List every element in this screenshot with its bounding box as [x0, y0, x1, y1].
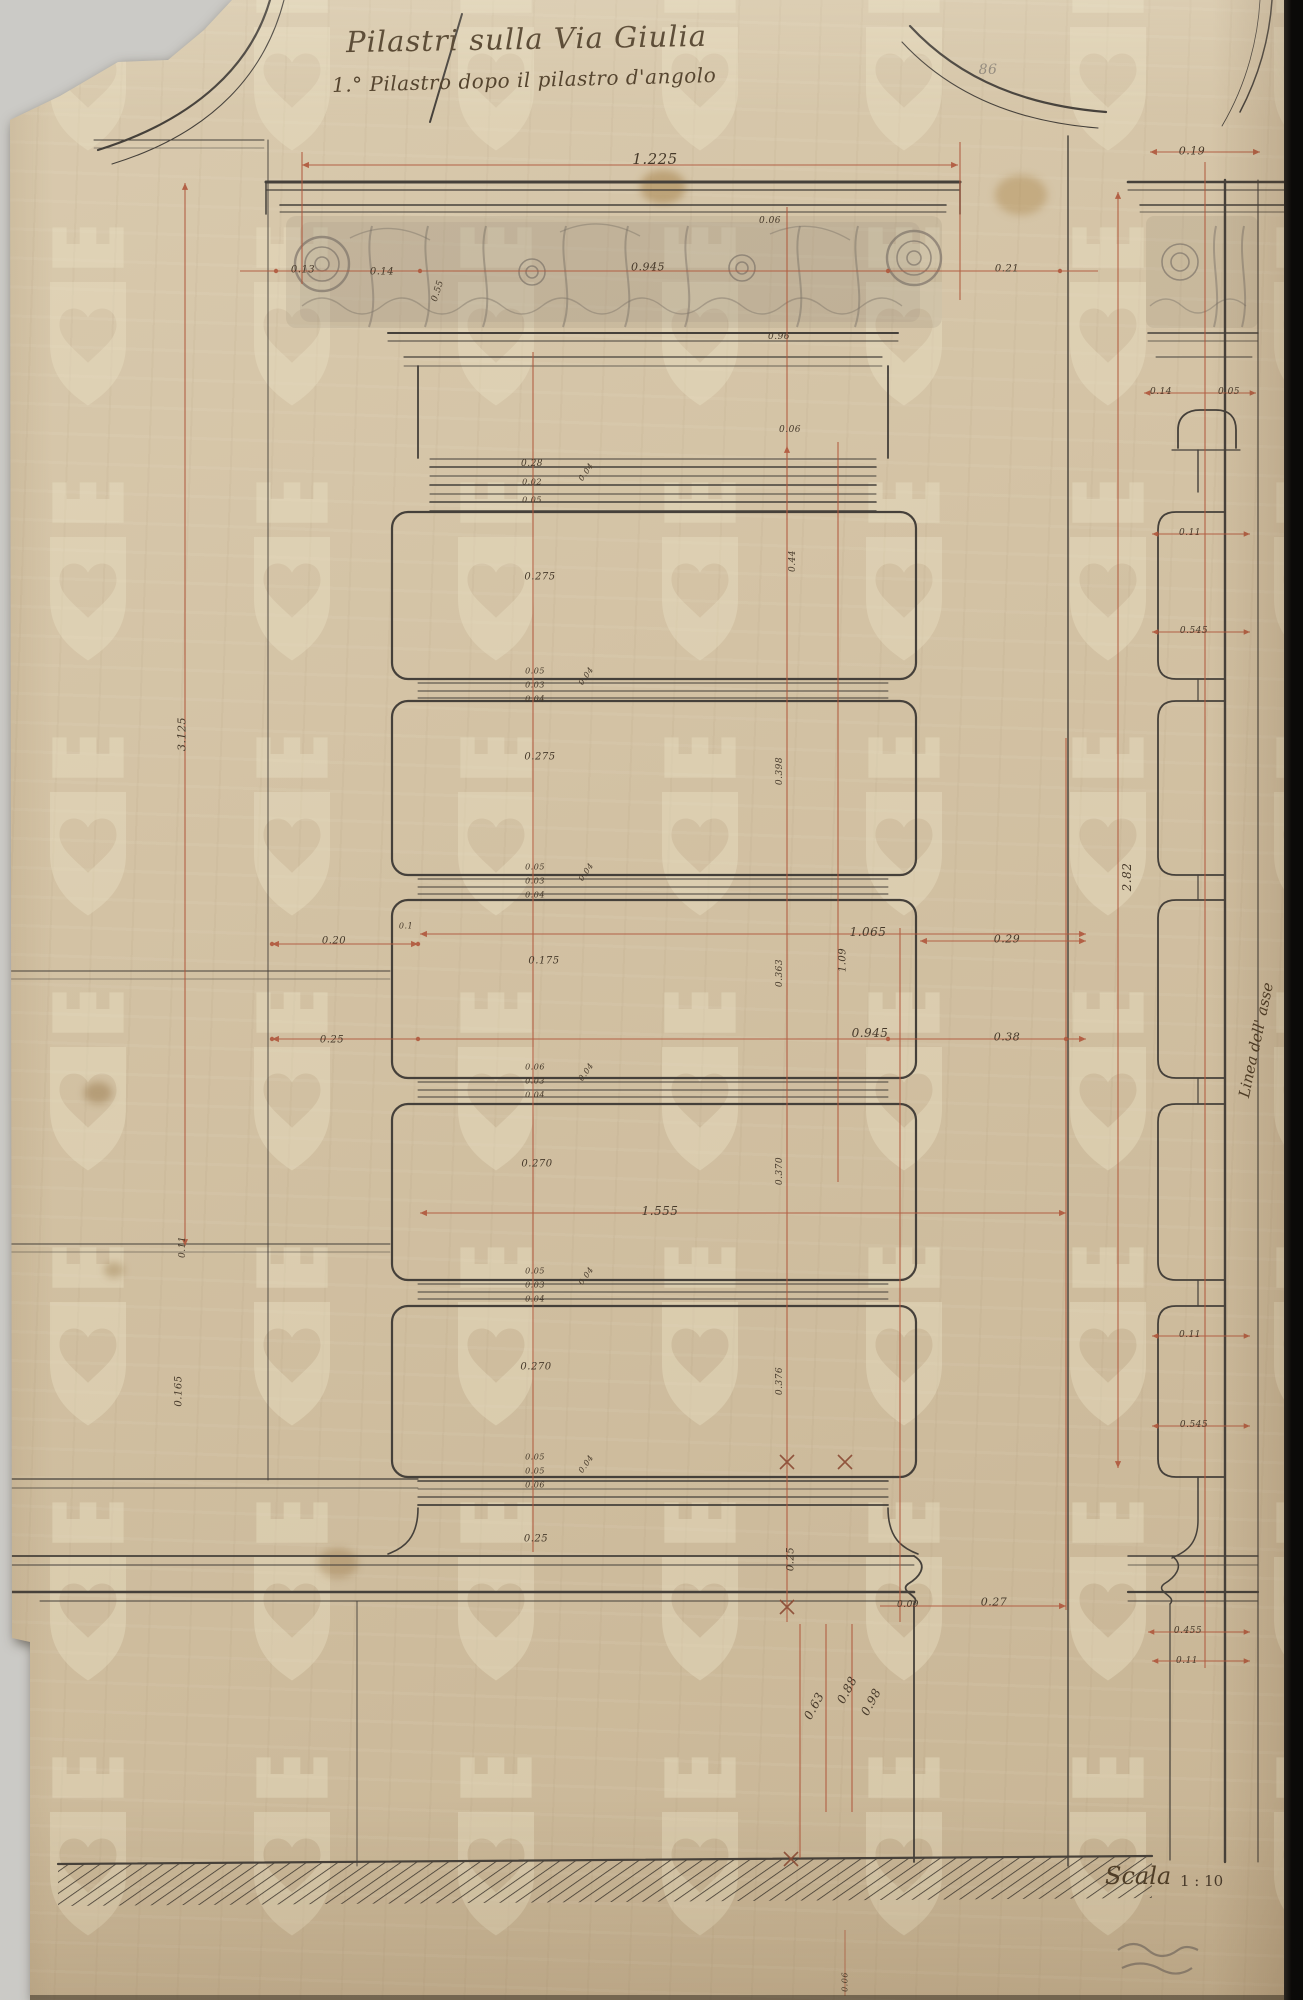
dimension-label: 0.05: [525, 1453, 545, 1462]
dimension-label: 1.555: [642, 1204, 679, 1218]
dimension-label: 0.88: [834, 1674, 860, 1706]
dimension-label: 0.06: [759, 216, 781, 226]
dimension-label: 0.20: [322, 936, 346, 947]
dimension-label: 0.05: [522, 496, 542, 505]
dimension-label: 0.19: [1179, 145, 1206, 158]
dimension-label: 0.14: [1150, 387, 1172, 397]
dimension-label: 0.05: [525, 1267, 545, 1276]
dimension-label: 0.05: [525, 667, 545, 676]
dimension-label: 0.03: [525, 1077, 545, 1086]
dimension-label: 0.55: [430, 279, 446, 303]
dimension-label: 0.06: [841, 1972, 850, 1992]
dimension-label: 0.945: [852, 1026, 889, 1040]
dimension-label: 0.02: [522, 478, 542, 487]
dimension-label: 0.03: [525, 1281, 545, 1290]
dimension-label: 0.06: [525, 1481, 545, 1490]
dimension-label: 0.04: [525, 891, 545, 900]
paper-wrap: Pilastri sulla Via Giulia 1.° Pilastro d…: [0, 0, 1303, 2000]
scanner-edge-bottom: [30, 1995, 1284, 2000]
dimension-label: 0.06: [525, 1063, 545, 1072]
dimension-label: 0.275: [524, 572, 555, 583]
dimension-label: 0.06: [779, 425, 801, 435]
dimension-label: 0.21: [995, 264, 1019, 275]
scale-ratio: 1 : 10: [1180, 1872, 1223, 1890]
dimension-label: 0.98: [858, 1686, 884, 1718]
dimension-label: 1.065: [850, 925, 887, 939]
dimension-label: 0.11: [1179, 528, 1201, 538]
dimension-label: 0.11: [1176, 1656, 1198, 1666]
dimension-label: 0.11: [178, 1236, 188, 1258]
dimension-label: 0.63: [801, 1690, 827, 1722]
dimension-label: 0.05: [1218, 387, 1240, 397]
dimension-label: 1.09: [838, 948, 849, 972]
dimension-label: 0.370: [775, 1157, 785, 1185]
dimension-label: 0.04: [577, 861, 596, 882]
dimension-label: 0.04: [525, 695, 545, 704]
dimension-label: 0.175: [528, 956, 559, 967]
dimension-label: 0.13: [291, 265, 315, 276]
dimension-label: 0.398: [775, 757, 785, 785]
drawing-title: Pilastri sulla Via Giulia: [346, 19, 708, 59]
dimension-label: 0.270: [521, 1159, 552, 1170]
dimension-label: 0.28: [521, 459, 543, 469]
dimension-label: 0.545: [1180, 1420, 1208, 1430]
dimension-label: 0.04: [577, 1061, 596, 1082]
dimension-label: 0.165: [174, 1375, 185, 1406]
dimension-label: 0.04: [577, 1265, 596, 1286]
dimension-label: 86: [979, 62, 998, 78]
dimension-label: 0.270: [520, 1362, 551, 1373]
dimension-label: 0.25: [524, 1534, 548, 1545]
dimension-label: 0.04: [577, 461, 596, 482]
axis-note: Linea dell' asse: [1235, 981, 1277, 1099]
dimension-label: 0.275: [524, 752, 555, 763]
dimension-label: 0.25: [786, 1547, 797, 1571]
dimension-label: 3.125: [176, 717, 189, 751]
dimension-label: 1.225: [632, 150, 677, 168]
dimension-label: 2.82: [1120, 863, 1134, 892]
dimension-label: 0.455: [1174, 1626, 1202, 1636]
scale-label: Scala: [1105, 1862, 1171, 1890]
dimension-label: 0.25: [320, 1035, 344, 1046]
dimension-label: 0.1: [399, 922, 413, 931]
dimension-label: 0.04: [577, 1453, 596, 1474]
annotation-layer: Pilastri sulla Via Giulia 1.° Pilastro d…: [0, 0, 1303, 2000]
dimension-label: 0.363: [775, 959, 785, 987]
dimension-label: 0.11: [1179, 1330, 1201, 1340]
dimension-label: 0.38: [994, 1031, 1021, 1044]
dimension-label: 0.44: [788, 550, 798, 572]
dimension-label: 0.545: [1180, 626, 1208, 636]
dimension-label: 0.29: [994, 933, 1021, 946]
dimension-label: 0.04: [525, 1295, 545, 1304]
dimension-label: 0.96: [768, 332, 790, 342]
dimension-label: 0.03: [525, 681, 545, 690]
scan-background: Pilastri sulla Via Giulia 1.° Pilastro d…: [0, 0, 1303, 2000]
dimension-label: 0.945: [631, 261, 665, 274]
dimension-label: 0.04: [525, 1091, 545, 1100]
paper-sheet: Pilastri sulla Via Giulia 1.° Pilastro d…: [0, 0, 1303, 2000]
dimension-label: 0.14: [370, 267, 394, 278]
drawing-subtitle: 1.° Pilastro dopo il pilastro d'angolo: [332, 63, 717, 97]
dimension-label: 0.05: [525, 1467, 545, 1476]
dimension-label: 0.376: [775, 1367, 785, 1395]
dimension-label: 0.05: [525, 863, 545, 872]
dimension-label: 0.27: [981, 1596, 1008, 1609]
dimension-label: 0.04: [577, 665, 596, 686]
dimension-label: 0.09: [897, 1600, 919, 1610]
dimension-label: 0.03: [525, 877, 545, 886]
scanner-edge-right: [1284, 0, 1303, 2000]
